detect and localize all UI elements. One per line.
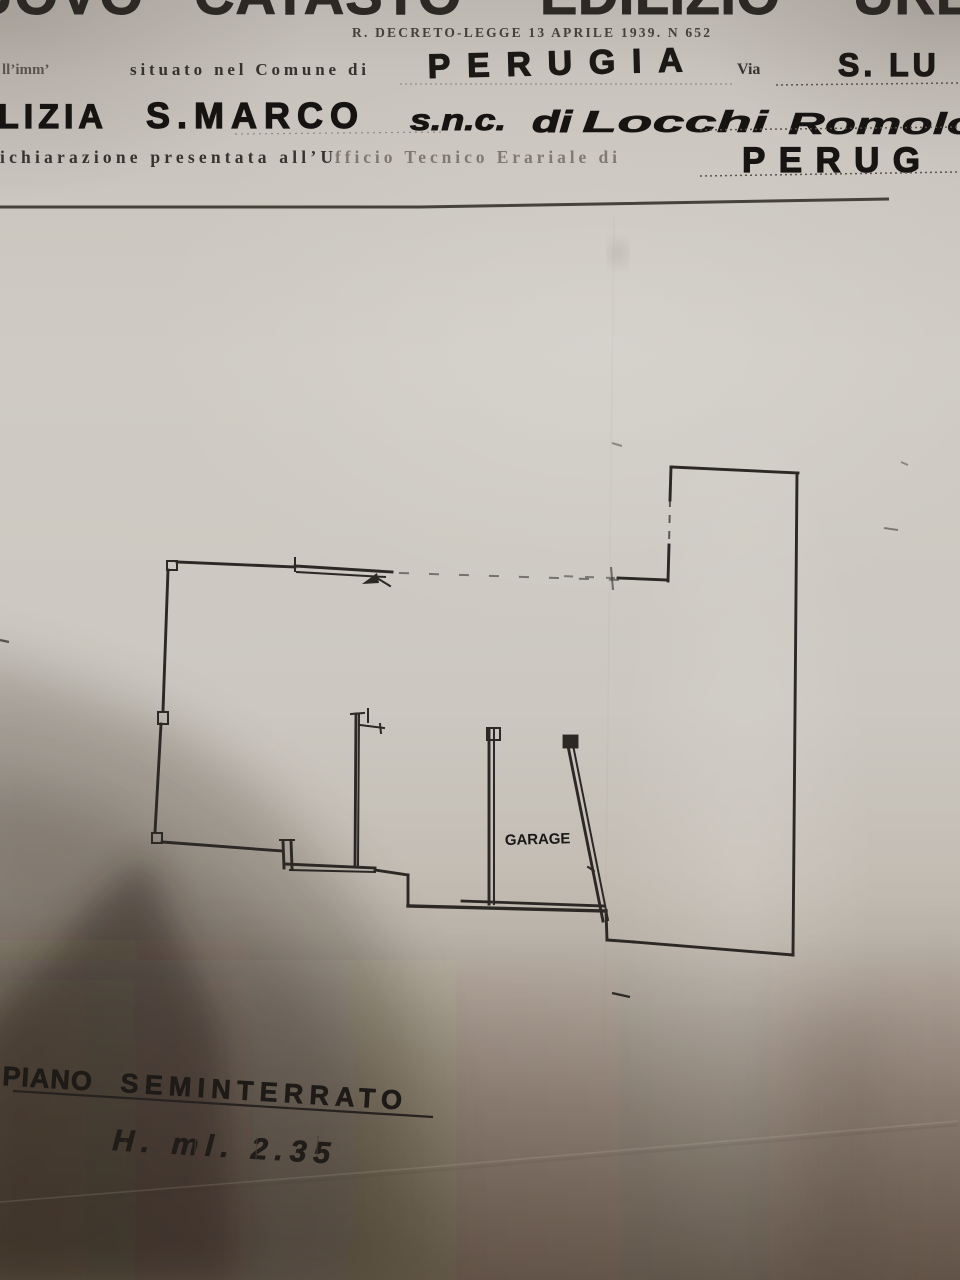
svg-text:S. LU: S. LU: [838, 47, 940, 83]
svg-text:situato nel Comune di: situato nel Comune di: [130, 60, 366, 79]
svg-text:UOVO: UOVO: [0, 0, 145, 26]
svg-text:di: di: [532, 104, 574, 139]
svg-text:GARAGE: GARAGE: [505, 830, 571, 849]
svg-text:Locchi: Locchi: [582, 104, 771, 139]
svg-text:ichiarazione presentata all’U: ichiarazione presentata all’U: [0, 147, 333, 167]
svg-text:S.MARCO: S.MARCO: [146, 95, 362, 136]
svg-text:ll’imm’: ll’imm’: [2, 62, 49, 78]
svg-text:URB: URB: [853, 0, 960, 26]
svg-text:CATASTO: CATASTO: [194, 0, 462, 26]
svg-text:EDILIZIO: EDILIZIO: [540, 0, 780, 26]
svg-text:LIZIA: LIZIA: [0, 98, 108, 136]
svg-text:R. DECRETO-LEGGE 13 APRILE 193: R. DECRETO-LEGGE 13 APRILE 1939. N 652: [352, 25, 710, 40]
svg-text:Via: Via: [737, 61, 760, 78]
svg-text:Romolo: Romolo: [788, 106, 960, 141]
svg-text:s.n.c.: s.n.c.: [410, 104, 506, 137]
